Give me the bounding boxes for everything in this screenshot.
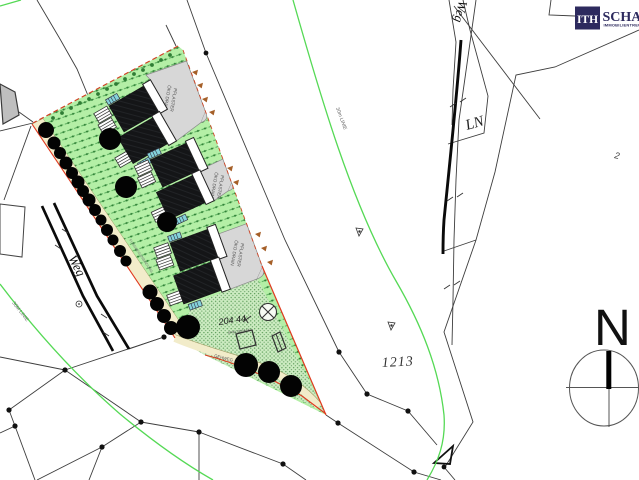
svg-text:1213: 1213: [381, 354, 414, 371]
svg-text:N: N: [594, 299, 631, 356]
svg-text:IMMOBILIENTREUHAND: IMMOBILIENTREUHAND: [604, 23, 639, 28]
svg-text:ITH: ITH: [577, 14, 598, 26]
